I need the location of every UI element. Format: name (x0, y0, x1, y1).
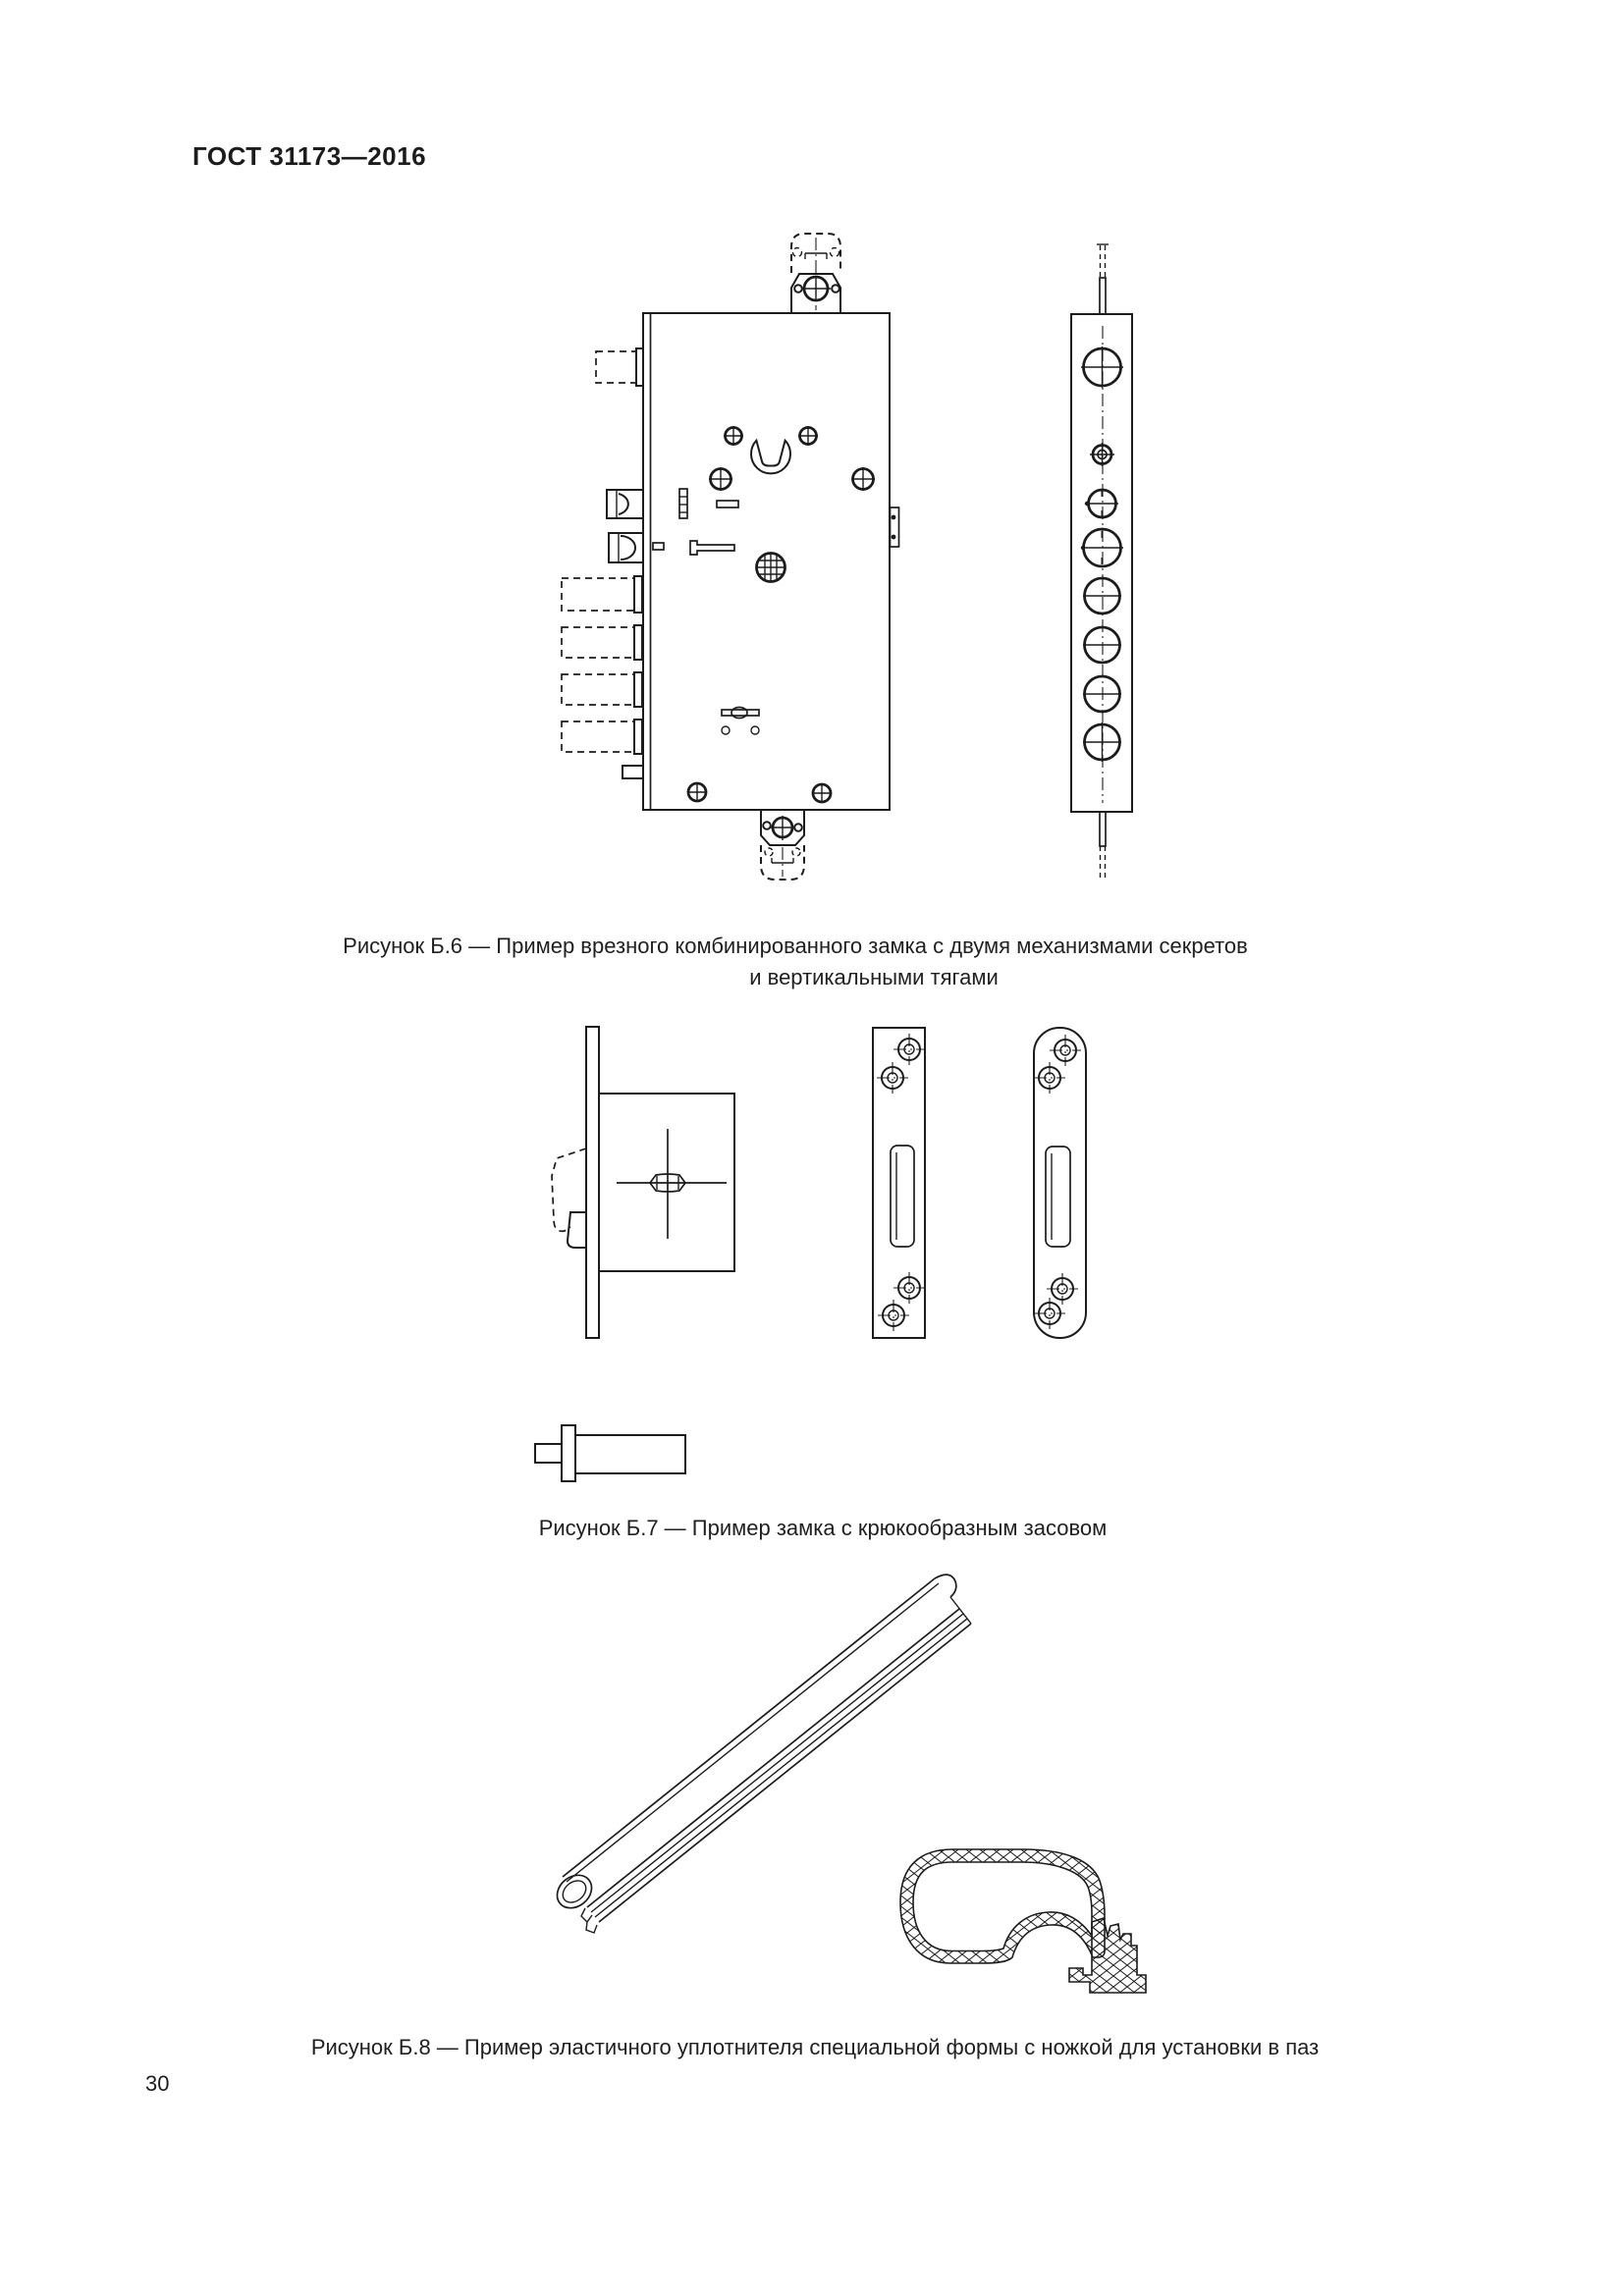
page-number: 30 (145, 2071, 169, 2097)
figure-b6-caption-line1: Рисунок Б.6 — Пример врезного комбиниров… (142, 933, 1448, 960)
figure-b6-caption-line2: и вертикальными тягами (221, 964, 1527, 991)
standard-code-header: ГОСТ 31173—2016 (192, 141, 426, 172)
document-page: ГОСТ 31173—2016 (0, 0, 1624, 2296)
deadbolts-left (562, 348, 643, 778)
hatched-nut (755, 552, 786, 583)
keyhole (751, 441, 790, 474)
figure-b8-drawing (530, 1566, 1168, 2007)
seal-cross-section (900, 1849, 1146, 1993)
hook-bolt-lock-body (552, 1027, 734, 1338)
strike-plate-rounded (1034, 1028, 1086, 1338)
screw-targets (877, 1034, 925, 1331)
mounting-bracket-top (791, 234, 840, 313)
bolt-pin (535, 1425, 685, 1481)
screw-targets (1034, 1035, 1081, 1329)
lock-side-view (1071, 244, 1132, 878)
lock-front-view (562, 234, 899, 880)
mechanism-details (653, 489, 759, 734)
screw-heads (687, 426, 875, 803)
figure-b7-caption: Рисунок Б.7 — Пример замка с крюкообразн… (170, 1515, 1476, 1542)
figure-b7-drawing (520, 1021, 1100, 1492)
side-view-holes (1081, 347, 1123, 762)
strike-plate-rectangular (873, 1028, 925, 1338)
figure-b6-drawing (520, 226, 1149, 893)
right-edge-latch (891, 507, 899, 547)
figure-b8-caption: Рисунок Б.8 — Пример эластичного уплотни… (162, 2034, 1468, 2061)
mounting-bracket-bottom (761, 810, 804, 880)
